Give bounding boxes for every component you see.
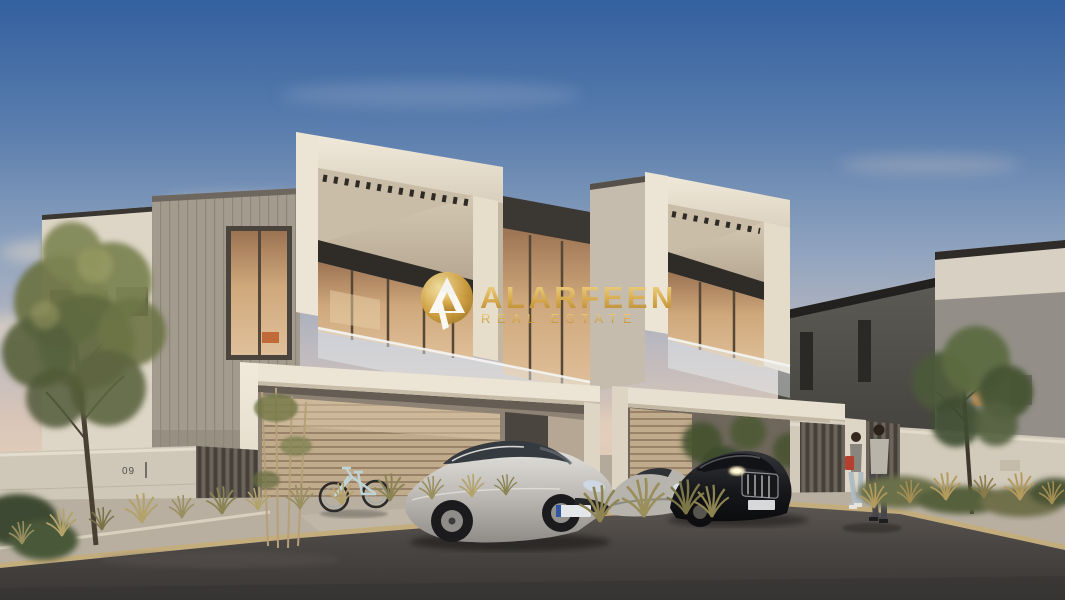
watermark-tagline: REAL ESTATE	[481, 311, 638, 326]
rendered-photo: 09	[0, 0, 1065, 600]
watermark-brand: ALARFEEN	[480, 280, 677, 315]
house-number: 09	[122, 466, 135, 477]
tall-window	[226, 226, 292, 360]
slat-gate-right	[800, 422, 845, 504]
duplex-left-unit	[296, 132, 503, 362]
chrome-grille	[742, 472, 778, 499]
scene-canvas: 09	[0, 0, 1065, 600]
